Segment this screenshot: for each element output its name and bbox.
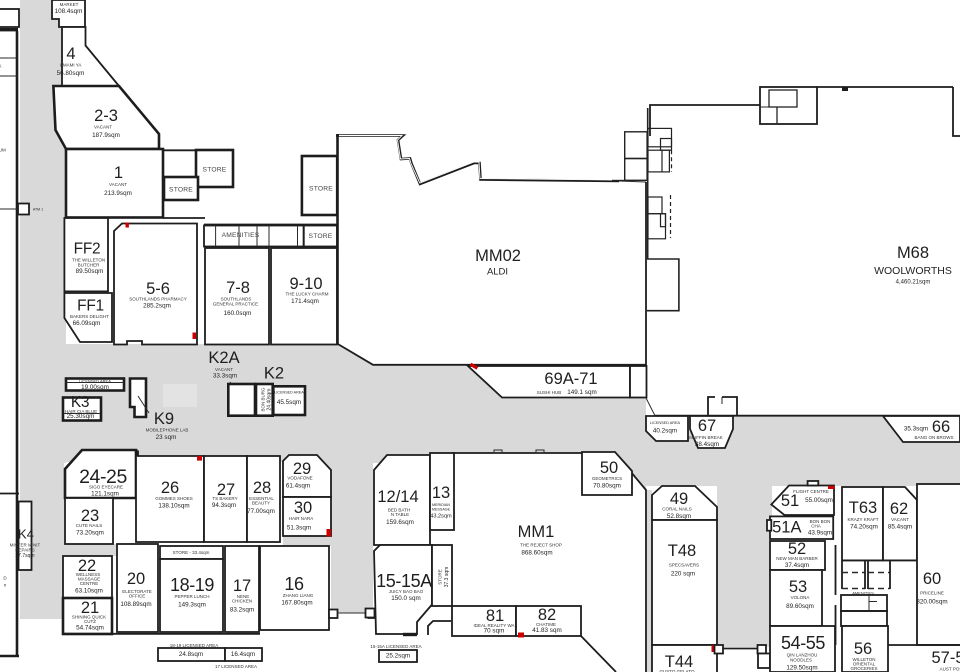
svg-text:BON BURG: BON BURG	[261, 387, 266, 412]
svg-text:66: 66	[932, 418, 950, 436]
svg-text:108.89sqm: 108.89sqm	[120, 601, 151, 608]
svg-text:STORE: STORE	[438, 569, 443, 584]
svg-text:77.00sqm: 77.00sqm	[247, 508, 275, 515]
svg-text:45.5sqm: 45.5sqm	[277, 399, 301, 406]
svg-text:MARKET: MARKET	[60, 2, 79, 7]
svg-text:LICENSED AREA: LICENSED AREA	[650, 421, 681, 425]
svg-text:38.4sqm: 38.4sqm	[695, 441, 719, 448]
svg-text:4: 4	[66, 45, 75, 63]
svg-text:74.20sqm: 74.20sqm	[850, 524, 878, 531]
svg-text:K: K	[0, 64, 2, 69]
svg-text:16: 16	[284, 574, 304, 594]
svg-text:MOBILEPHONE LAB: MOBILEPHONE LAB	[146, 428, 189, 433]
svg-text:2-3: 2-3	[94, 107, 118, 125]
svg-text:MUFFIN BREAK: MUFFIN BREAK	[689, 435, 723, 440]
svg-text:43.9sqm: 43.9sqm	[808, 530, 832, 537]
svg-text:55.00sqm: 55.00sqm	[805, 497, 833, 504]
svg-text:TS BAKERY: TS BAKERY	[212, 496, 237, 501]
svg-text:63.10sqm: 63.10sqm	[75, 588, 103, 595]
svg-text:CHICKEN: CHICKEN	[232, 599, 252, 604]
svg-text:LICENSED AREA: LICENSED AREA	[274, 391, 304, 395]
svg-text:69A-71: 69A-71	[544, 370, 597, 388]
svg-text:CUTE NAILS: CUTE NAILS	[76, 523, 103, 528]
svg-text:138.10sqm: 138.10sqm	[158, 503, 189, 510]
svg-text:BUTCHER: BUTCHER	[78, 263, 101, 268]
svg-text:SOUTHLANDS PHARMACY: SOUTHLANDS PHARMACY	[129, 297, 187, 302]
svg-text:85.4sqm: 85.4sqm	[888, 524, 912, 531]
svg-text:150.0 sqm: 150.0 sqm	[391, 595, 420, 602]
svg-text:UMAMI YA: UMAMI YA	[60, 63, 82, 68]
svg-text:GENERAL PRACTICE: GENERAL PRACTICE	[213, 302, 258, 307]
svg-text:SIGO EYECARE: SIGO EYECARE	[89, 485, 123, 490]
svg-text:WOOLWORTHS: WOOLWORTHS	[874, 265, 952, 277]
svg-text:51.3sqm: 51.3sqm	[287, 525, 311, 532]
svg-text:PRICELINE: PRICELINE	[920, 591, 944, 596]
svg-text:108.4sqm: 108.4sqm	[55, 8, 83, 15]
svg-text:AMENITIES: AMENITIES	[222, 232, 260, 239]
svg-text:SUSHI HUB: SUSHI HUB	[537, 390, 562, 395]
svg-text:26: 26	[161, 479, 179, 497]
svg-text:37.4sqm: 37.4sqm	[785, 562, 809, 569]
svg-text:OFFICE: OFFICE	[129, 594, 146, 599]
svg-text:13: 13	[432, 484, 450, 502]
svg-text:57-5: 57-5	[931, 649, 960, 667]
svg-text:BANG ON BROWS: BANG ON BROWS	[914, 435, 953, 440]
svg-text:89.50sqm: 89.50sqm	[76, 268, 104, 275]
svg-text:MERIDIAN: MERIDIAN	[432, 503, 450, 507]
svg-text:25.30sqm: 25.30sqm	[67, 413, 95, 420]
svg-text:VACANT: VACANT	[94, 125, 112, 130]
svg-text:285.2sqm: 285.2sqm	[143, 303, 171, 310]
svg-text:NOODLES: NOODLES	[790, 658, 812, 663]
svg-text:K4: K4	[18, 527, 34, 542]
svg-text:JUICY BAO BAO: JUICY BAO BAO	[389, 589, 424, 594]
svg-text:149.3sqm: 149.3sqm	[178, 602, 206, 609]
svg-text:T48: T48	[668, 542, 696, 560]
svg-text:CENTRE: CENTRE	[80, 581, 99, 586]
svg-text:1: 1	[114, 164, 123, 182]
svg-text:7-8: 7-8	[226, 279, 250, 297]
svg-text:220 sqm: 220 sqm	[671, 571, 695, 578]
svg-text:17: 17	[233, 577, 251, 595]
svg-text:PEPPER LUNCH: PEPPER LUNCH	[174, 594, 209, 599]
svg-text:GROCERIES: GROCERIES	[850, 666, 877, 671]
svg-text:MM02: MM02	[475, 247, 521, 265]
svg-text:VACANT: VACANT	[891, 517, 909, 522]
svg-text:70.80sqm: 70.80sqm	[593, 483, 621, 490]
svg-text:HAIR NARA: HAIR NARA	[289, 516, 314, 521]
svg-text:56.80sqm: 56.80sqm	[57, 70, 85, 77]
svg-text:213.9sqm: 213.9sqm	[104, 190, 132, 197]
svg-text:FF1: FF1	[77, 298, 104, 315]
svg-text:STORE - 33.4sqm: STORE - 33.4sqm	[173, 550, 210, 555]
svg-text:FF2: FF2	[74, 241, 101, 258]
svg-text:5-6: 5-6	[146, 280, 170, 298]
svg-text:41.83 sqm: 41.83 sqm	[532, 627, 561, 634]
svg-text:CHA: CHA	[811, 524, 821, 529]
svg-text:K9: K9	[154, 410, 174, 428]
svg-text:61.4sqm: 61.4sqm	[286, 483, 310, 490]
svg-text:54-55: 54-55	[781, 633, 825, 653]
svg-text:51A: 51A	[772, 519, 801, 537]
svg-text:ZHANG LIANG: ZHANG LIANG	[283, 593, 314, 598]
svg-text:RIUM: RIUM	[0, 148, 6, 153]
svg-text:28: 28	[253, 479, 271, 497]
svg-text:53: 53	[789, 578, 807, 596]
svg-text:50: 50	[600, 459, 618, 477]
svg-text:70 sqm: 70 sqm	[484, 628, 505, 635]
svg-text:49: 49	[670, 490, 688, 508]
svg-text:43.2sqm: 43.2sqm	[430, 514, 452, 520]
svg-text:30: 30	[294, 499, 312, 517]
svg-text:15-15A: 15-15A	[376, 571, 432, 591]
svg-text:121.1sqm: 121.1sqm	[91, 491, 119, 498]
svg-text:VACANT: VACANT	[215, 367, 233, 372]
svg-text:171.4sqm: 171.4sqm	[291, 298, 319, 305]
svg-text:15-15A LICENSED AREA: 15-15A LICENSED AREA	[370, 644, 421, 649]
svg-text:159.6sqm: 159.6sqm	[386, 519, 414, 526]
svg-text:16.4sqm: 16.4sqm	[231, 651, 255, 658]
svg-text:BEAUTY: BEAUTY	[252, 501, 270, 506]
svg-text:LICENSED AREA: LICENSED AREA	[79, 379, 111, 384]
svg-text:40.2sqm: 40.2sqm	[653, 428, 677, 435]
svg-text:GOMMES SHOES: GOMMES SHOES	[155, 496, 193, 501]
svg-text:ALDI: ALDI	[487, 267, 508, 278]
svg-text:12/14: 12/14	[377, 488, 418, 506]
svg-text:17 LICENSED AREA: 17 LICENSED AREA	[215, 664, 257, 669]
svg-text:STORE: STORE	[169, 187, 193, 194]
svg-text:VODAFONE: VODAFONE	[287, 476, 312, 481]
svg-text:167.80sqm: 167.80sqm	[281, 600, 312, 607]
svg-text:KRAZY KRAFT: KRAZY KRAFT	[848, 517, 879, 522]
svg-text:129.50sqm: 129.50sqm	[786, 665, 817, 672]
svg-text:STORE: STORE	[309, 186, 333, 193]
svg-text:GEOMETRICS: GEOMETRICS	[592, 476, 622, 481]
svg-text:52.8sqm: 52.8sqm	[667, 513, 691, 520]
svg-text:51: 51	[781, 492, 799, 510]
svg-text:MESSAGE: MESSAGE	[432, 508, 451, 512]
svg-text:25.2sqm: 25.2sqm	[386, 653, 410, 660]
svg-text:T63: T63	[849, 499, 877, 517]
svg-text:BAKERS DELIGHT: BAKERS DELIGHT	[70, 314, 109, 319]
svg-text:K2A: K2A	[208, 349, 239, 367]
svg-text:37.3 sqm: 37.3 sqm	[444, 567, 450, 588]
svg-text:149.1 sqm: 149.1 sqm	[567, 389, 596, 396]
svg-text:83.2sqm: 83.2sqm	[230, 607, 254, 614]
svg-text:VOLONA: VOLONA	[791, 595, 810, 600]
svg-text:19.00sqm: 19.00sqm	[81, 384, 109, 391]
svg-text:66.09sqm: 66.09sqm	[73, 320, 101, 327]
svg-text:35.3sqm: 35.3sqm	[904, 426, 928, 433]
svg-text:160.0sqm: 160.0sqm	[224, 310, 252, 317]
svg-text:62: 62	[890, 500, 908, 518]
svg-text:24.8sqm: 24.8sqm	[179, 651, 203, 658]
svg-text:THE LUCKY CHARM: THE LUCKY CHARM	[286, 292, 329, 297]
svg-text:33.3sqm: 33.3sqm	[213, 373, 237, 380]
svg-text:320.00sqm: 320.00sqm	[916, 599, 947, 606]
svg-text:94.3sqm: 94.3sqm	[212, 502, 236, 509]
svg-text:67: 67	[698, 417, 716, 435]
svg-text:4,460.21sqm: 4,460.21sqm	[896, 280, 931, 286]
svg-text:20: 20	[127, 570, 145, 588]
svg-text:K2: K2	[264, 365, 284, 383]
svg-text:60: 60	[923, 570, 941, 588]
svg-text:N TABLE: N TABLE	[391, 512, 409, 517]
svg-text:REPAIRS: REPAIRS	[15, 548, 34, 553]
svg-text:73.20sqm: 73.20sqm	[76, 530, 104, 537]
svg-text:M68: M68	[897, 244, 929, 262]
svg-text:THE REJECT SHOP: THE REJECT SHOP	[520, 543, 562, 548]
svg-text:56: 56	[854, 640, 872, 658]
svg-text:AUST POS: AUST POS	[940, 667, 960, 672]
svg-text:24.40sqm: 24.40sqm	[267, 389, 273, 411]
svg-text:27.7sqm: 27.7sqm	[15, 553, 34, 559]
svg-text:ATM 1: ATM 1	[33, 208, 43, 212]
svg-text:89.60sqm: 89.60sqm	[786, 603, 814, 610]
svg-text:SPECSAVERS: SPECSAVERS	[669, 563, 699, 568]
svg-text:CORAL NAILS: CORAL NAILS	[662, 507, 692, 512]
svg-text:STORE: STORE	[203, 167, 227, 174]
svg-text:868.60sqm: 868.60sqm	[521, 550, 552, 557]
svg-text:54.74sqm: 54.74sqm	[76, 625, 104, 632]
svg-text:FLIGHT CENTRE: FLIGHT CENTRE	[793, 489, 829, 494]
svg-text:CUTZ: CUTZ	[84, 619, 96, 624]
svg-text:VACANT: VACANT	[109, 182, 127, 187]
svg-text:23 sqm: 23 sqm	[156, 434, 177, 441]
svg-text:187.9sqm: 187.9sqm	[92, 132, 120, 139]
svg-text:18-19: 18-19	[170, 575, 214, 595]
svg-text:STORE: STORE	[309, 233, 333, 240]
svg-text:NEW MAN BARBER: NEW MAN BARBER	[776, 556, 818, 561]
svg-text:9-10: 9-10	[289, 275, 322, 293]
svg-text:MM1: MM1	[518, 523, 555, 541]
